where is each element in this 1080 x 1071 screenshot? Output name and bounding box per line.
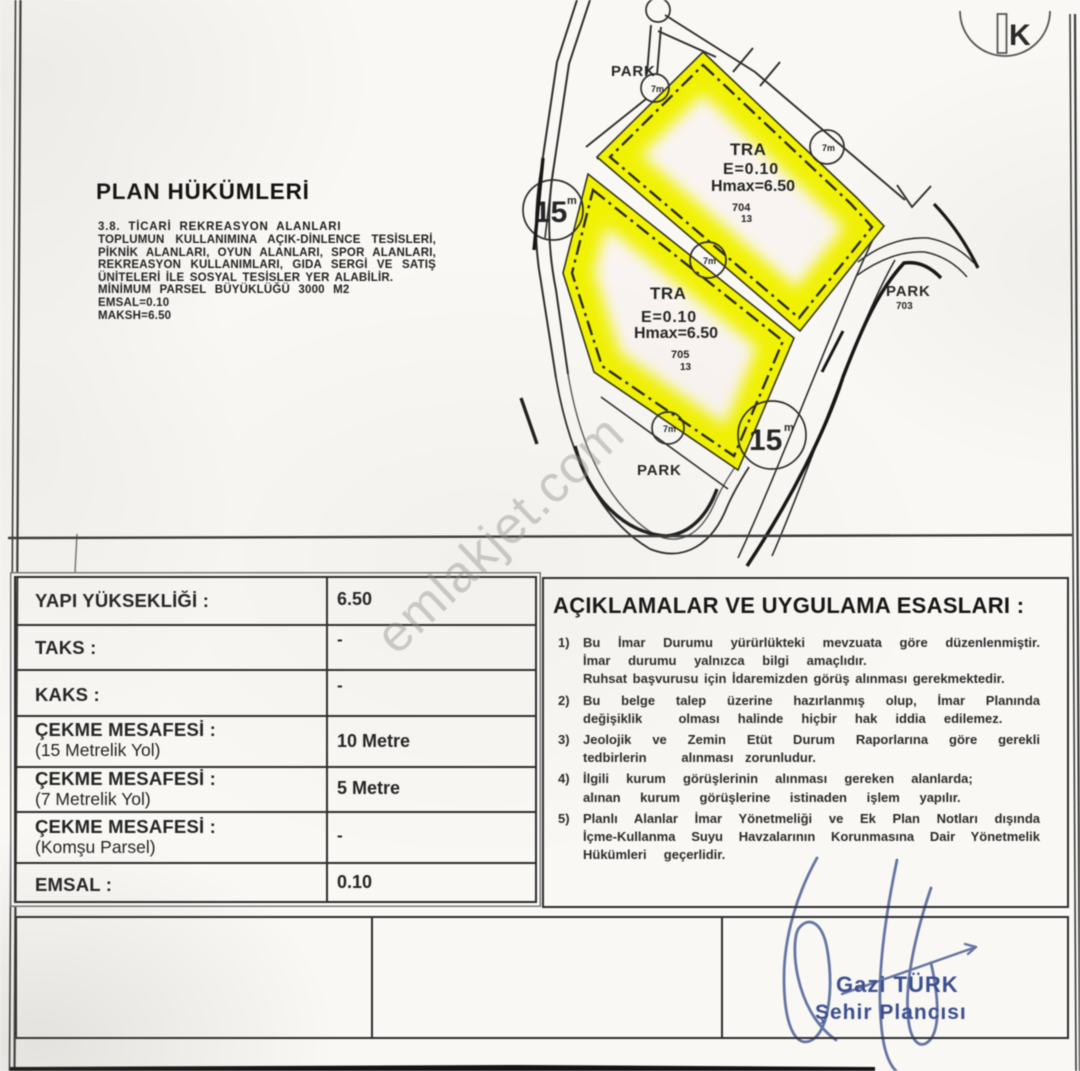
- svg-text:m: m: [567, 195, 577, 207]
- svg-text:7m: 7m: [663, 424, 676, 434]
- svg-text:703: 703: [896, 301, 913, 312]
- svg-text:TRA: TRA: [730, 140, 766, 159]
- svg-text:E=0.10: E=0.10: [641, 309, 697, 326]
- svg-text:13: 13: [680, 362, 692, 373]
- svg-text:PARK: PARK: [886, 283, 931, 300]
- svg-text:15: 15: [749, 424, 782, 457]
- svg-text:7m: 7m: [822, 143, 835, 153]
- svg-text:PARK: PARK: [637, 462, 682, 479]
- svg-text:m: m: [784, 422, 794, 434]
- svg-text:TRA: TRA: [650, 284, 686, 303]
- svg-text:Hmax=6.50: Hmax=6.50: [634, 325, 718, 342]
- svg-text:Hmax=6.50: Hmax=6.50: [711, 178, 795, 195]
- svg-text:E=0.10: E=0.10: [723, 161, 779, 178]
- svg-text:7m: 7m: [703, 256, 716, 266]
- svg-text:7m: 7m: [651, 84, 664, 94]
- svg-text:K: K: [1009, 19, 1031, 52]
- svg-text:704: 704: [732, 202, 751, 214]
- svg-text:13: 13: [741, 214, 753, 225]
- svg-text:705: 705: [671, 349, 689, 361]
- svg-text:PARK: PARK: [611, 63, 656, 80]
